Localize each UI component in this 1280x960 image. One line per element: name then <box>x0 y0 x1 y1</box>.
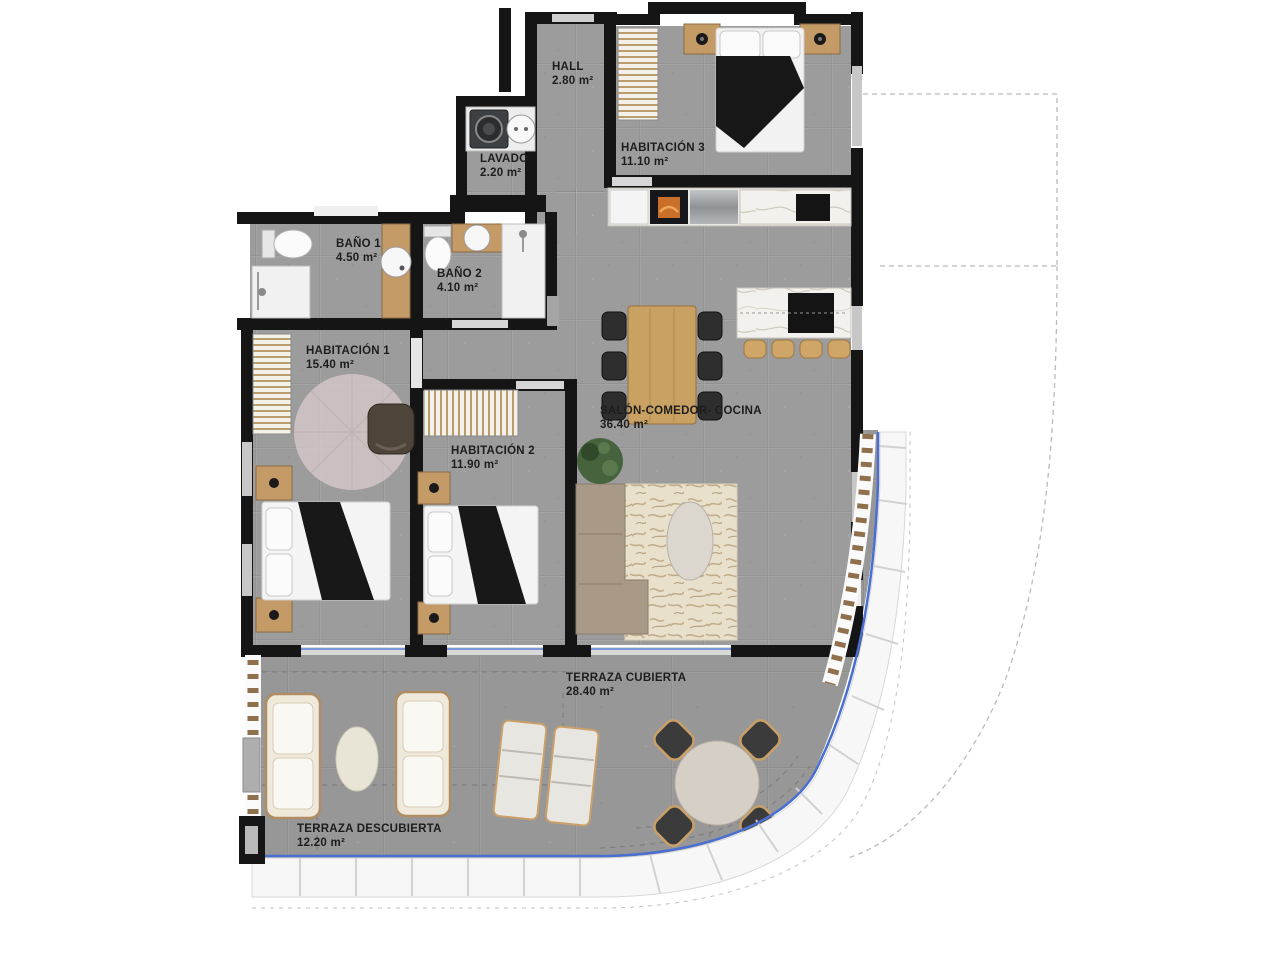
entry-door-threshold <box>552 14 594 22</box>
sun-lounger-1 <box>493 720 547 820</box>
plant <box>577 438 623 484</box>
sliding-doors <box>301 647 731 655</box>
fridge <box>610 190 648 224</box>
sun-lounger-2 <box>545 726 599 826</box>
room-label-salon: SALÓN-COMEDOR- COCINA 36.40 m² <box>600 404 762 432</box>
room-label-terraza-cubierta: TERRAZA CUBIERTA 28.40 m² <box>566 671 686 699</box>
bano1-sink <box>381 247 411 277</box>
bano2-sink <box>464 225 490 251</box>
hab2-door <box>516 381 564 389</box>
room-label-lavado: LAVADO 2.20 m² <box>480 152 528 180</box>
neighbor-outline <box>848 94 1057 858</box>
hab3-wardrobe <box>618 28 658 120</box>
kitchen-sink <box>796 194 830 221</box>
bano1-window <box>314 206 378 216</box>
bano2-door <box>452 320 508 328</box>
room-label-bano2: BAÑO 2 4.10 m² <box>437 267 482 295</box>
room-label-habitacion1: HABITACIÓN 1 15.40 m² <box>306 344 390 372</box>
room-label-habitacion2: HABITACIÓN 2 11.90 m² <box>451 444 535 472</box>
wall-pocket <box>547 296 559 326</box>
hab3-window <box>852 66 862 146</box>
room-label-hall: HALL 2.80 m² <box>552 60 593 88</box>
outdoor-dining-table <box>675 741 759 825</box>
hab1-wardrobe <box>253 334 291 434</box>
lavado-fixtures <box>466 107 535 151</box>
bano1-toilet <box>274 230 312 258</box>
room-label-habitacion3: HABITACIÓN 3 11.10 m² <box>621 141 705 169</box>
room-label-terraza-descubierta: TERRAZA DESCUBIERTA 12.20 m² <box>297 822 442 850</box>
bano1-toilet-tank <box>262 230 275 258</box>
bano2-toilet <box>425 237 451 271</box>
hab1-window-1 <box>242 442 252 496</box>
hab1-window-2 <box>242 544 252 596</box>
outdoor-coffee-table <box>336 727 378 791</box>
hab3-door <box>612 177 652 186</box>
bano2-toilet-tank <box>424 226 451 237</box>
coffee-table <box>667 502 713 580</box>
hab1-door <box>411 338 422 388</box>
kitchen-window <box>852 306 862 350</box>
hab1-armchair <box>368 404 414 454</box>
left-planter <box>243 738 260 792</box>
dishwasher <box>690 190 738 224</box>
room-label-bano1: BAÑO 1 4.50 m² <box>336 237 381 265</box>
laundry-sink <box>507 115 535 143</box>
floor-plan-canvas: HALL 2.80 m² LAVADO 2.20 m² HABITACIÓN 3… <box>0 0 1280 960</box>
hab2-wardrobe <box>424 390 518 436</box>
